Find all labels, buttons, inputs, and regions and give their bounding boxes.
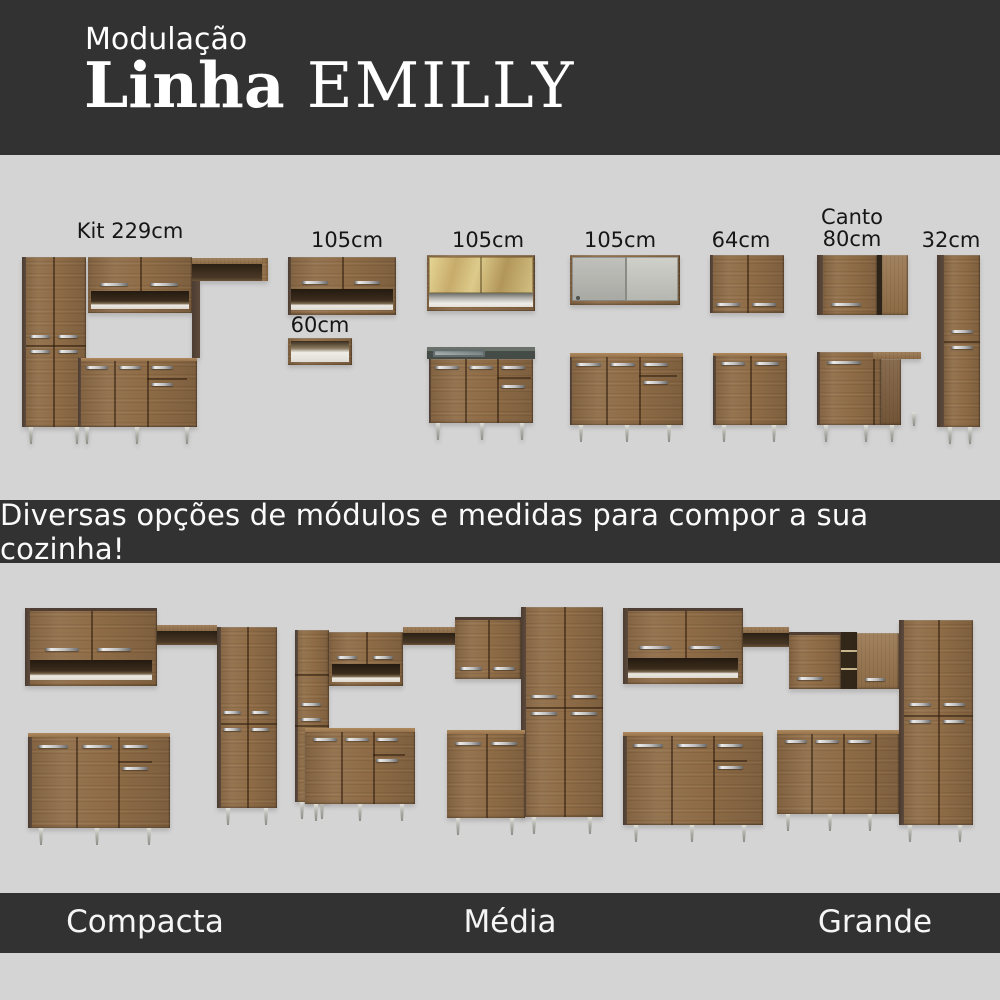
glass-handle [576, 296, 580, 300]
door-handle [633, 744, 663, 747]
door-seam [342, 257, 344, 289]
cabinet-leg [225, 808, 231, 825]
door-handle [717, 766, 743, 769]
door-handle [301, 718, 321, 721]
door-handle [721, 362, 745, 365]
cabinet-side [710, 255, 713, 313]
cabinet-leg [435, 423, 441, 440]
sink-base-body [429, 359, 533, 423]
cabinet-side [28, 737, 32, 828]
shelf-top [157, 625, 217, 631]
banner-text: Diversas opções de módulos e medidas par… [0, 498, 1000, 566]
cabinet-side [78, 358, 81, 427]
door-seam [486, 734, 488, 818]
cabinet-side [295, 630, 298, 802]
door-seam [147, 361, 149, 427]
door-handle [755, 362, 779, 365]
door-seam [873, 352, 875, 425]
cabinet-leg [721, 425, 727, 442]
door-seam [488, 620, 490, 679]
door-handle [639, 646, 671, 649]
cabinet-leg [357, 804, 363, 821]
module-wall-105-glass [427, 255, 535, 311]
door-handle [301, 703, 321, 706]
door-handle [82, 745, 112, 748]
cabinet-leg [146, 828, 152, 845]
cabinet-leg [823, 425, 829, 442]
cabinet-leg [863, 425, 869, 442]
corner-base-body [817, 352, 881, 425]
compacta-base-cabinet [28, 733, 170, 828]
cabinet-leg [319, 802, 325, 819]
shelf-interior [192, 264, 262, 281]
grande-corner-wall-cabinet [857, 633, 899, 689]
cabinet-leg [666, 425, 672, 442]
door-seam [875, 734, 877, 814]
cabinet-leg [74, 427, 80, 444]
media-base-cabinet-2 [447, 730, 525, 818]
label-wall-64: 64cm [691, 229, 791, 251]
open-niche [30, 660, 152, 680]
door-handle [251, 728, 269, 731]
sink-basin [433, 349, 485, 357]
label-niche-60: 60cm [283, 314, 357, 336]
drawer-handle [643, 363, 668, 366]
cabinet-top [78, 358, 197, 361]
door-handle [493, 667, 515, 670]
door-seam [713, 736, 715, 825]
module-wall-64 [710, 255, 784, 313]
door-handle [491, 742, 517, 745]
glass-seam [625, 257, 627, 301]
media-base-cabinet-1 [305, 728, 415, 804]
drawer-handle [151, 366, 173, 369]
door-handle [223, 728, 241, 731]
label-media: Média [405, 904, 615, 940]
kit-tall-cabinet [22, 257, 86, 427]
niche-interior [291, 341, 349, 362]
drawer-seam [373, 754, 405, 756]
cabinet-top [570, 353, 683, 357]
label-wall-105-niche: 105cm [297, 229, 397, 251]
cabinet-leg [28, 427, 34, 444]
door-handle [45, 648, 79, 651]
door-handle [943, 720, 965, 723]
label-wall-105-sliding: 105cm [570, 229, 670, 251]
door-handle [951, 330, 973, 333]
module-base-105 [570, 353, 683, 425]
grande-mid-wall-cabinet [789, 632, 841, 689]
door-handle [951, 346, 973, 349]
media-right-wall-pair [455, 617, 521, 679]
cabinet-leg [867, 814, 873, 831]
shelf-line [841, 668, 857, 670]
open-niche [332, 664, 400, 682]
door-seam [247, 627, 249, 808]
door-seam [295, 674, 329, 676]
door-handle [469, 366, 493, 369]
door-handle [86, 366, 108, 369]
module-wall-105-niche [288, 257, 396, 315]
door-handle [455, 742, 481, 745]
door-handle [223, 711, 241, 714]
door-handle [831, 303, 861, 306]
title-emilly-text: EMILLY [307, 49, 576, 122]
module-base-64 [713, 353, 787, 425]
cabinet-top [623, 608, 743, 611]
drawer-seam [147, 378, 187, 380]
door-handle [716, 303, 740, 306]
door-handle [30, 335, 50, 338]
title-emilly [285, 49, 307, 122]
door-handle [150, 283, 178, 286]
module-kit-229 [22, 255, 268, 445]
door-seam [639, 357, 641, 425]
drawer-seam [118, 761, 152, 763]
label-wall-105-glass: 105cm [438, 229, 538, 251]
door-handle [610, 363, 635, 366]
grande-bridge-shelf [743, 627, 789, 651]
cabinet-leg [967, 427, 973, 444]
cabinet-leg [38, 828, 44, 845]
cabinet-leg [509, 818, 515, 835]
kit-wall-cabinet [88, 257, 192, 313]
drawer-seam [497, 377, 531, 379]
glass-seam [480, 257, 482, 293]
door-seam [685, 611, 687, 658]
cabinet-leg [911, 412, 917, 426]
cabinet-leg [399, 804, 405, 821]
corner-angled-door [881, 359, 901, 425]
door-handle [785, 740, 807, 743]
door-seam [26, 345, 86, 347]
header-band: Modulação Linha EMILLY [0, 0, 1000, 155]
door-handle [58, 350, 78, 353]
drawer-handle [501, 366, 525, 369]
door-handle [151, 383, 173, 386]
cabinet-side [570, 357, 572, 425]
cabinet-leg [633, 825, 639, 842]
corner-return-panel [882, 255, 908, 315]
module-base-canto [817, 352, 921, 442]
door-seam [465, 359, 467, 423]
door-handle [100, 283, 128, 286]
page-title: Linha EMILLY [84, 54, 575, 117]
door-handle [302, 281, 328, 284]
door-seam [904, 715, 973, 717]
shelf-top [403, 627, 455, 633]
module-wall-canto-80 [817, 255, 908, 315]
door-handle [373, 656, 393, 659]
door-seam [91, 611, 93, 660]
door-handle [815, 740, 839, 743]
shelf-interior [743, 633, 789, 647]
media-bridge-shelf [403, 627, 455, 649]
door-handle [865, 678, 885, 681]
open-niche [91, 291, 189, 309]
cabinet-side [713, 356, 716, 425]
cabinet-top [789, 632, 841, 635]
cabinet-leg [531, 817, 537, 834]
door-handle [313, 738, 337, 741]
door-seam [811, 734, 813, 814]
door-seam [526, 707, 603, 709]
cabinet-side [899, 620, 904, 825]
door-handle [909, 703, 931, 706]
door-handle [345, 738, 369, 741]
door-handle [943, 703, 965, 706]
cabinet-side [22, 257, 26, 427]
kit-connector-panel [192, 281, 200, 358]
corner-countertop-wing [873, 352, 921, 359]
door-handle [677, 744, 707, 747]
compacta-tall-cabinet [217, 627, 277, 808]
door-seam [76, 737, 78, 828]
module-base-sink-105 [427, 347, 535, 440]
door-handle [354, 281, 380, 284]
door-handle [576, 363, 601, 366]
door-handle [58, 335, 78, 338]
cabinet-leg [957, 825, 963, 842]
drawer-seam [713, 760, 747, 762]
cabinet-leg [947, 427, 953, 444]
cabinet-leg [455, 818, 461, 835]
door-seam [938, 620, 940, 825]
open-niche [429, 293, 533, 307]
media-wall-cabinet [329, 632, 403, 686]
cabinet-leg [578, 425, 584, 442]
compacta-wall-cabinet [25, 608, 157, 686]
door-handle [847, 740, 871, 743]
door-handle [30, 350, 50, 353]
corner-door [823, 255, 877, 315]
cabinet-leg [519, 423, 525, 440]
door-handle [376, 759, 398, 762]
door-handle [752, 303, 776, 306]
cabinet-side [217, 627, 221, 808]
cabinet-leg [889, 425, 895, 442]
door-handle [689, 646, 721, 649]
door-handle [460, 667, 482, 670]
tall-door [944, 255, 980, 427]
cabinet-leg [771, 425, 777, 442]
door-seam [944, 341, 980, 343]
cabinet-leg [624, 425, 630, 442]
door-handle [122, 767, 148, 770]
door-handle [909, 720, 931, 723]
door-seam [118, 737, 120, 828]
cabinet-leg [479, 423, 485, 440]
module-wall-105-sliding [570, 255, 680, 305]
cabinet-leg [741, 825, 747, 842]
door-handle [643, 381, 668, 384]
cabinet-leg [299, 802, 305, 819]
label-kit-229: Kit 229cm [60, 220, 200, 242]
glass-panel-left [572, 257, 625, 301]
door-handle [38, 745, 68, 748]
cabinet-leg [84, 427, 90, 444]
title-linha: Linha [84, 48, 285, 122]
cabinet-side [429, 359, 431, 423]
cabinet-leg [785, 814, 791, 831]
drawer-seam [639, 375, 677, 377]
door-seam [497, 359, 499, 423]
label-wall-canto-80: Canto 80cm [802, 206, 902, 250]
door-handle [531, 695, 557, 698]
door-seam [750, 356, 752, 425]
shelf-top [743, 627, 789, 633]
door-seam [373, 732, 375, 804]
cabinet-leg [134, 427, 140, 444]
cabinet-top [777, 730, 899, 734]
door-seam [341, 732, 343, 804]
grande-wall-cabinet [623, 608, 743, 684]
label-grande: Grande [770, 904, 980, 940]
door-seam [843, 734, 845, 814]
grande-corner-base [777, 730, 899, 814]
door-handle [797, 677, 823, 680]
cabinet-leg [587, 817, 593, 834]
grande-right-tall [899, 620, 973, 825]
door-seam [221, 723, 277, 725]
cabinet-leg [313, 804, 319, 821]
shelf-line [841, 650, 857, 652]
cabinet-side [817, 352, 820, 425]
shelf-interior [403, 633, 455, 645]
door-seam [53, 257, 55, 427]
shelf-interior [157, 631, 217, 645]
cabinet-leg [184, 427, 190, 444]
door-handle [435, 366, 459, 369]
cabinet-top [623, 732, 763, 736]
door-handle [501, 385, 525, 388]
kit-base-cabinet [78, 358, 197, 427]
cabinet-leg [94, 828, 100, 845]
cabinet-leg [689, 825, 695, 842]
door-seam [564, 607, 566, 817]
cabinet-side [937, 255, 944, 427]
door-handle [251, 711, 269, 714]
door-handle [531, 712, 557, 715]
open-niche [291, 289, 393, 310]
grande-base-cabinet [623, 732, 763, 825]
compacta-bridge-shelf [157, 625, 217, 649]
door-seam [140, 257, 142, 291]
cabinet-leg [827, 814, 833, 831]
door-seam [114, 361, 116, 427]
media-right-tall [521, 607, 603, 817]
door-handle [827, 361, 861, 364]
open-niche [628, 658, 738, 678]
cabinet-leg [907, 825, 913, 842]
drawer-handle [376, 738, 398, 741]
door-seam [606, 357, 608, 425]
cabinet-top [305, 728, 415, 732]
cabinet-top [28, 733, 170, 737]
door-handle [571, 695, 597, 698]
cabinet-side [623, 736, 627, 825]
kit-top-shelf [192, 258, 268, 281]
footer-band: Compacta Média Grande [0, 893, 1000, 953]
drawer-handle [717, 744, 743, 747]
door-seam [366, 632, 368, 664]
door-seam [747, 255, 749, 313]
door-handle [97, 648, 131, 651]
promo-page: Modulação Linha EMILLY Kit 229cm 105cm 1… [0, 0, 1000, 1000]
module-tall-32 [937, 255, 980, 445]
door-handle [337, 656, 357, 659]
shelf-top [192, 258, 268, 264]
banner-band: Diversas opções de módulos e medidas par… [0, 500, 1000, 563]
shelf-side [262, 258, 268, 281]
grande-corner-cubbies [841, 632, 857, 689]
door-seam [295, 725, 329, 727]
drawer-handle [122, 745, 148, 748]
module-niche-60 [288, 338, 352, 365]
cabinet-leg [263, 808, 269, 825]
door-seam [671, 736, 673, 825]
door-handle [119, 366, 141, 369]
label-tall-32: 32cm [901, 229, 1000, 251]
door-handle [571, 712, 597, 715]
label-compacta: Compacta [40, 904, 250, 940]
